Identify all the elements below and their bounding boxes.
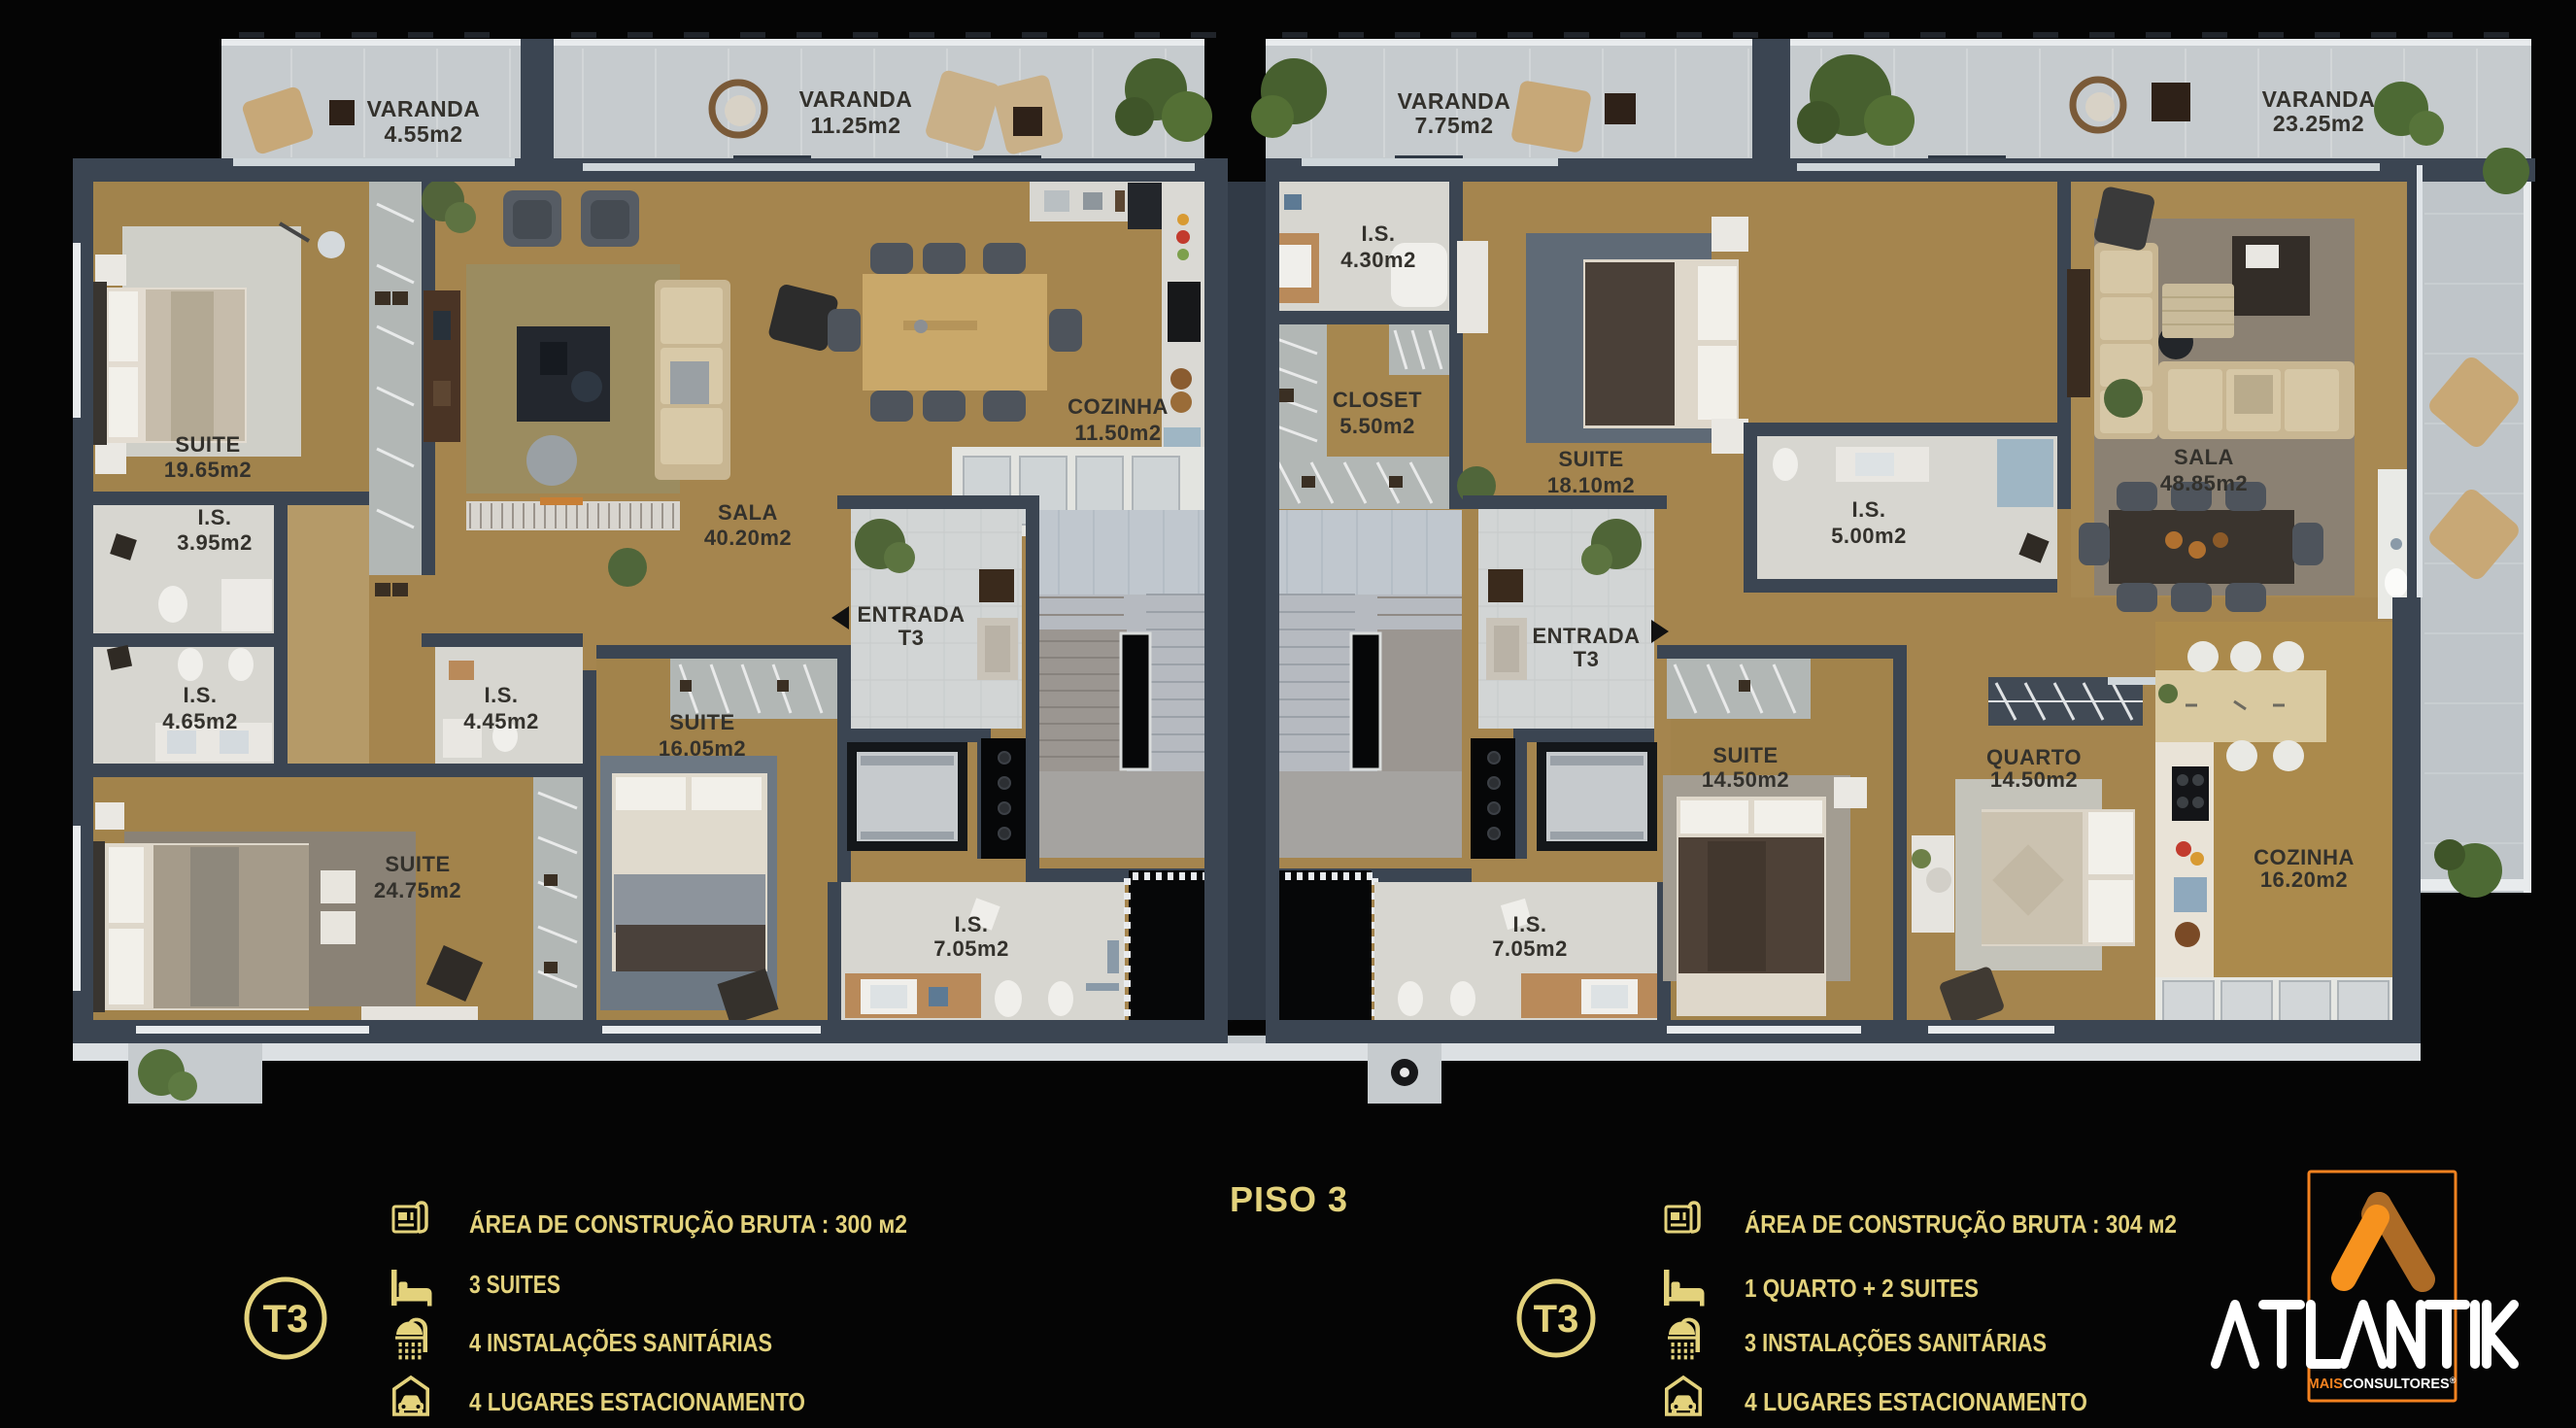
svg-text:I.S.: I.S.	[197, 505, 231, 529]
svg-text:SALA: SALA	[718, 500, 778, 525]
svg-text:4.45m2: 4.45m2	[463, 709, 539, 733]
svg-text:1 QUARTO + 2 SUITES: 1 QUARTO + 2 SUITES	[1745, 1274, 1979, 1303]
svg-text:16.05m2: 16.05m2	[659, 736, 746, 761]
svg-text:VARANDA: VARANDA	[799, 86, 913, 112]
svg-text:4 LUGARES ESTACIONAMENTO: 4 LUGARES ESTACIONAMENTO	[1745, 1387, 2087, 1416]
svg-text:MAISCONSULTORES®: MAISCONSULTORES®	[2308, 1376, 2457, 1392]
svg-text:ÁREA DE CONSTRUÇÃO BRUTA : 30: ÁREA DE CONSTRUÇÃO BRUTA : 300 м2	[469, 1209, 907, 1239]
svg-text:48.85m2: 48.85m2	[2160, 471, 2248, 495]
svg-text:40.20m2: 40.20m2	[704, 526, 792, 550]
svg-text:23.25m2: 23.25m2	[2273, 111, 2364, 136]
svg-text:I.S.: I.S.	[954, 912, 988, 936]
svg-text:T3: T3	[263, 1298, 309, 1341]
svg-text:4.30m2: 4.30m2	[1340, 248, 1416, 272]
svg-text:QUARTO: QUARTO	[1986, 745, 2082, 769]
svg-text:4.65m2: 4.65m2	[162, 709, 238, 733]
svg-text:COZINHA: COZINHA	[1068, 394, 1169, 419]
svg-text:SUITE: SUITE	[385, 852, 450, 876]
svg-text:5.50m2: 5.50m2	[1339, 414, 1415, 438]
svg-text:I.S.: I.S.	[1512, 912, 1546, 936]
svg-text:SUITE: SUITE	[669, 710, 734, 734]
svg-text:T3: T3	[1574, 647, 1600, 671]
svg-text:24.75m2: 24.75m2	[374, 878, 461, 902]
svg-text:4.55m2: 4.55m2	[384, 121, 462, 147]
svg-text:7.05m2: 7.05m2	[1492, 936, 1568, 961]
svg-text:5.00m2: 5.00m2	[1831, 524, 1907, 548]
svg-text:11.50m2: 11.50m2	[1074, 421, 1161, 445]
svg-text:VARANDA: VARANDA	[2262, 86, 2376, 112]
svg-text:ENTRADA: ENTRADA	[1532, 624, 1640, 648]
svg-text:VARANDA: VARANDA	[1398, 88, 1511, 114]
svg-text:SUITE: SUITE	[1712, 743, 1778, 767]
svg-text:I.S.: I.S.	[1851, 497, 1885, 522]
svg-text:4 INSTALAÇÕES SANITÁRIAS: 4 INSTALAÇÕES SANITÁRIAS	[469, 1328, 772, 1357]
svg-text:SUITE: SUITE	[175, 432, 240, 457]
svg-text:11.25m2: 11.25m2	[810, 113, 900, 138]
svg-text:COZINHA: COZINHA	[2254, 845, 2355, 869]
svg-text:PISO 3: PISO 3	[1230, 1179, 1348, 1219]
svg-text:3 SUITES: 3 SUITES	[469, 1270, 560, 1299]
svg-text:7.75m2: 7.75m2	[1414, 113, 1493, 138]
svg-text:I.S.: I.S.	[484, 683, 518, 707]
svg-text:3 INSTALAÇÕES SANITÁRIAS: 3 INSTALAÇÕES SANITÁRIAS	[1745, 1328, 2047, 1357]
svg-text:ENTRADA: ENTRADA	[857, 602, 965, 627]
svg-text:VARANDA: VARANDA	[367, 96, 481, 121]
svg-text:7.05m2: 7.05m2	[933, 936, 1009, 961]
svg-text:14.50m2: 14.50m2	[1702, 767, 1789, 792]
svg-text:3.95m2: 3.95m2	[177, 530, 253, 555]
svg-text:SUITE: SUITE	[1558, 447, 1623, 471]
svg-text:T3: T3	[1534, 1298, 1579, 1341]
svg-text:T3: T3	[898, 626, 925, 650]
svg-text:4 LUGARES ESTACIONAMENTO: 4 LUGARES ESTACIONAMENTO	[469, 1387, 805, 1416]
svg-text:14.50m2: 14.50m2	[1990, 767, 2078, 792]
svg-text:I.S.: I.S.	[1361, 221, 1395, 246]
svg-text:19.65m2: 19.65m2	[164, 458, 252, 482]
svg-text:16.20m2: 16.20m2	[2260, 867, 2348, 892]
svg-text:18.10m2: 18.10m2	[1547, 473, 1635, 497]
svg-text:CLOSET: CLOSET	[1333, 388, 1422, 412]
svg-text:ÁREA DE CONSTRUÇÃO BRUTA : 30: ÁREA DE CONSTRUÇÃO BRUTA : 304 м2	[1745, 1209, 2177, 1239]
svg-text:I.S.: I.S.	[183, 683, 217, 707]
svg-text:SALA: SALA	[2174, 445, 2234, 469]
